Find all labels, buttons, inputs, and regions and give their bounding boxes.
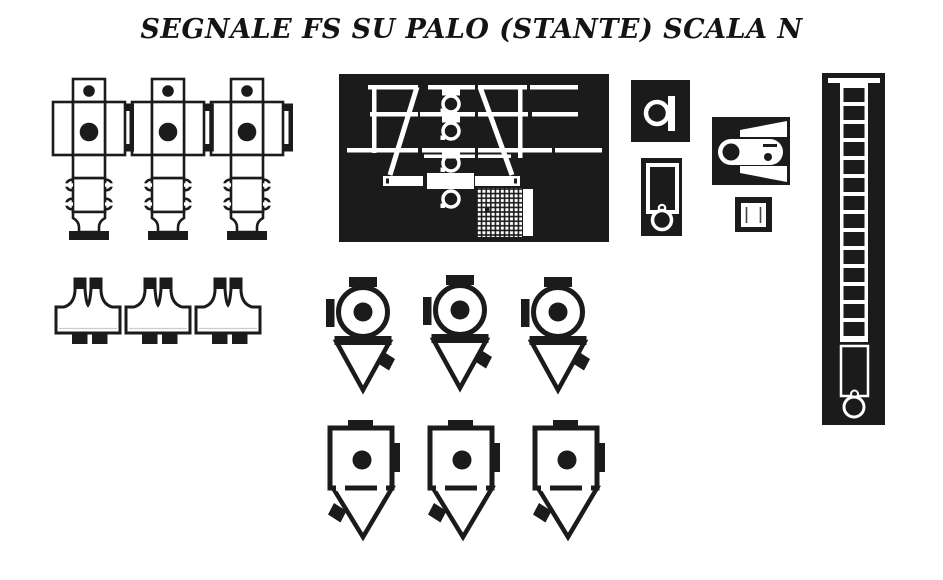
ladder [840, 83, 868, 342]
disc-signal-part-2 [423, 275, 492, 388]
connector-tab-3 [283, 104, 293, 152]
disc-signal-part-1 [326, 277, 395, 390]
square-signal-group [328, 420, 605, 537]
parts-drawing-svg [0, 0, 943, 580]
model-parts-sheet: SEGNALE FS SU PALO (STANTE) SCALA N [0, 0, 943, 580]
pedestal-bracket-3 [196, 278, 260, 344]
pedestal-bracket-2 [126, 278, 190, 344]
ladder-strip-part [822, 73, 885, 425]
pedestal-bracket-group [56, 278, 260, 344]
disc-signal-group [326, 275, 590, 390]
disc-signal-part-3 [521, 277, 590, 390]
square-signal-part-2 [428, 420, 500, 537]
signal-head-unfold-3 [211, 79, 283, 240]
connector-tab-2 [204, 104, 214, 152]
base-door-part [641, 158, 682, 236]
pedestal-bracket-1 [56, 278, 120, 344]
signal-head-unfold-group [53, 79, 293, 240]
signal-head-unfold-1 [53, 79, 125, 240]
walkway-grating [477, 188, 522, 237]
etched-fret-panel [339, 74, 609, 242]
square-signal-part-3 [533, 420, 605, 537]
counterweight-lever-part [712, 117, 790, 185]
clamp-part [735, 197, 772, 232]
signal-head-unfold-2 [132, 79, 204, 240]
lamp-finial-part [631, 80, 690, 142]
square-signal-part-1 [328, 420, 400, 537]
